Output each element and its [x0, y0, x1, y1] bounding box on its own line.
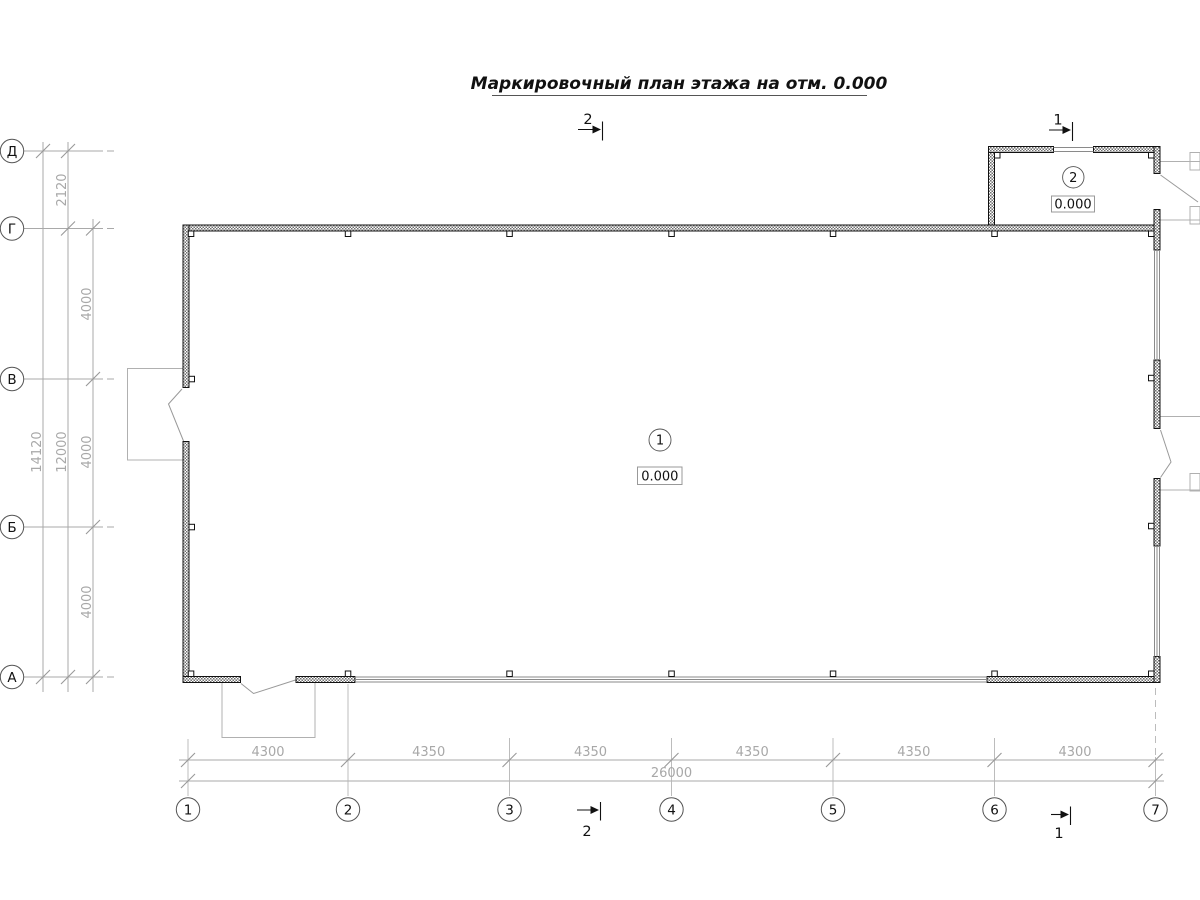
column-marker — [992, 671, 998, 677]
column-marker — [669, 231, 675, 237]
annex-door-swing — [1161, 175, 1199, 202]
wall-right-d — [1154, 657, 1160, 683]
column-marker — [189, 376, 195, 382]
left-dimension-system: 2120 4000 4000 4000 12000 14120 Д Г В Б … — [0, 139, 118, 692]
axis-label: 2 — [344, 802, 353, 818]
elevation-value: 0.000 — [641, 470, 678, 485]
axis-leader-lines-left — [24, 151, 118, 677]
axis-label: В — [7, 372, 16, 388]
room-label-1: 1 0.000 — [638, 429, 683, 485]
wall-right-a — [1154, 210, 1160, 251]
door-swings — [169, 175, 1199, 694]
dim-value: 12000 — [55, 431, 70, 472]
section-arrow-icon — [591, 806, 600, 814]
wall-bottom-a — [183, 677, 241, 683]
dim-value: 4350 — [736, 745, 769, 760]
annex-wall-right — [1154, 147, 1160, 174]
wall-left-lower — [183, 442, 189, 683]
column-marker — [830, 231, 836, 237]
section-label: 1 — [1054, 826, 1063, 842]
section-marker-2-top: 2 — [578, 112, 603, 141]
column-marker — [188, 671, 194, 677]
room-number: 1 — [656, 434, 664, 449]
axis-label: А — [7, 670, 17, 686]
section-label: 2 — [582, 824, 591, 840]
axis-label: Д — [7, 144, 18, 160]
room-label-2: 2 0.000 — [1052, 167, 1095, 213]
section-marker-2-bottom: 2 — [577, 802, 601, 840]
wall-right-b — [1154, 360, 1160, 429]
wall-top — [183, 225, 1160, 231]
section-label: 2 — [583, 112, 592, 128]
dim-value: 2120 — [55, 173, 70, 206]
right-landing-step — [1190, 207, 1200, 225]
room-number: 2 — [1069, 171, 1077, 186]
axis-label: 6 — [990, 802, 999, 818]
axis-label: 7 — [1151, 802, 1160, 818]
title-block: Маркировочный план этажа на отм. 0.000 — [471, 74, 888, 96]
dim-value: 4350 — [412, 745, 445, 760]
wall-left-upper — [183, 225, 189, 388]
section-arrow-icon — [1063, 126, 1072, 134]
dim-value: 4300 — [1058, 745, 1091, 760]
axis-label: Б — [7, 520, 16, 536]
section-arrow-icon — [593, 126, 602, 134]
section-label: 1 — [1053, 113, 1062, 129]
section-marker-1-bottom: 1 — [1051, 807, 1071, 843]
dim-value-total: 26000 — [651, 766, 692, 781]
floor-plan-drawing: Маркировочный план этажа на отм. 0.000 2… — [0, 0, 1200, 900]
column-marker — [188, 231, 194, 237]
column-marker — [992, 231, 998, 237]
right-landing-step — [1190, 474, 1200, 492]
column-marker — [189, 524, 195, 530]
section-marker-1-top: 1 — [1049, 113, 1073, 142]
dim-value: 4000 — [80, 435, 95, 468]
wall-bottom-c — [987, 677, 1160, 683]
axis-label: Г — [8, 221, 16, 237]
dim-value: 4350 — [574, 745, 607, 760]
dim-value: 4300 — [251, 745, 284, 760]
annex-wall-left — [989, 147, 995, 226]
walls — [183, 147, 1160, 683]
axis-label: 5 — [829, 802, 838, 818]
dim-value: 4000 — [80, 287, 95, 320]
column-marker — [507, 671, 513, 677]
bottom-porch-outline — [222, 683, 315, 738]
bottom-door-swing — [241, 680, 296, 694]
axis-bubbles-left: Д Г В Б А — [0, 139, 23, 688]
column-marker — [1149, 375, 1155, 381]
section-arrow-icon — [1061, 811, 1070, 819]
column-marker — [507, 231, 513, 237]
axis-label: 4 — [667, 802, 676, 818]
wall-right-c — [1154, 479, 1160, 547]
plan-canvas: Маркировочный план этажа на отм. 0.000 2… — [0, 0, 1200, 900]
annex-wall-top-b — [1094, 147, 1161, 153]
annex-wall-top-a — [989, 147, 1054, 153]
column-marker — [1149, 231, 1155, 237]
drawing-title: Маркировочный план этажа на отм. 0.000 — [471, 74, 888, 94]
dim-value: 14120 — [30, 431, 45, 472]
bottom-dimension-system: 4300 4350 4350 4350 4350 4300 26000 1 2 … — [176, 684, 1167, 821]
column-marker — [995, 153, 1001, 159]
column-marker — [1149, 671, 1155, 677]
left-door-swing — [169, 389, 184, 441]
column-marker — [345, 231, 351, 237]
axis-label: 1 — [184, 802, 193, 818]
column-marker — [1149, 523, 1155, 529]
dim-value: 4000 — [80, 585, 95, 618]
axis-bubbles-bottom: 1 2 3 4 5 6 7 — [176, 798, 1167, 821]
column-marker — [830, 671, 836, 677]
right-door-swing — [1161, 430, 1172, 478]
column-marker — [669, 671, 675, 677]
left-porch-outline — [128, 369, 184, 461]
elevation-value: 0.000 — [1054, 198, 1091, 213]
wall-bottom-b — [296, 677, 355, 683]
column-marker — [1149, 153, 1155, 159]
axis-label: 3 — [505, 802, 514, 818]
dim-value: 4350 — [897, 745, 930, 760]
column-marker — [345, 671, 351, 677]
